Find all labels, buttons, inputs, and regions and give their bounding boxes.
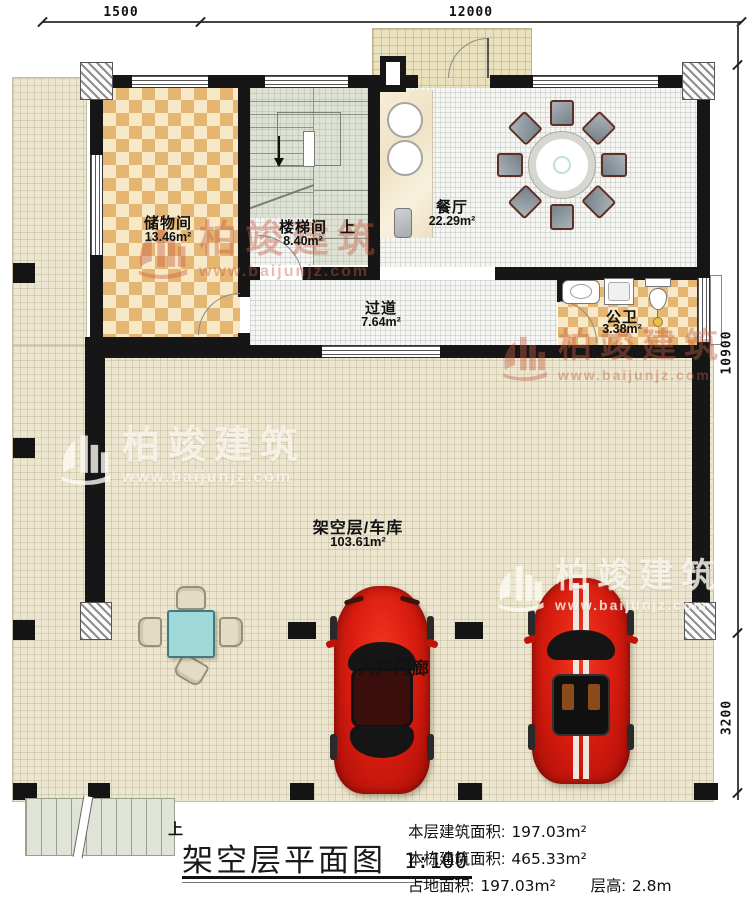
wheel — [528, 724, 535, 750]
wall — [490, 75, 533, 88]
wall-right-lower — [692, 358, 710, 604]
window — [533, 75, 658, 88]
chair — [219, 617, 243, 647]
dining-chair — [550, 100, 574, 126]
wheel — [627, 724, 634, 750]
stat-label: 本栋建筑面积: — [408, 851, 505, 868]
washing-machine-lid — [608, 282, 630, 301]
stat-value: 197.03m² — [480, 877, 556, 895]
dimension-top-left: 1500 — [42, 5, 200, 20]
windshield — [547, 630, 615, 660]
dimension-line-right — [737, 22, 739, 800]
dining-chair — [550, 204, 574, 230]
window — [90, 155, 103, 255]
counter-basin — [387, 140, 423, 176]
stair-arrowhead — [274, 158, 284, 167]
wall-storage-right — [238, 75, 250, 297]
column — [13, 263, 35, 283]
corner-column — [684, 602, 716, 640]
column — [458, 783, 482, 800]
column — [694, 783, 718, 800]
wall — [208, 75, 265, 88]
stair-arrow — [278, 136, 280, 160]
stair-tread — [250, 192, 313, 193]
engine-cover-window — [552, 674, 610, 736]
stat-value: 2.8m — [632, 877, 672, 895]
stair-newel — [303, 131, 315, 167]
stat-value: 197.03m² — [511, 823, 587, 841]
stat-value: 465.33m² — [511, 850, 587, 868]
entry-door-leaf — [487, 38, 489, 78]
chair — [176, 586, 206, 610]
counter-basin — [387, 102, 423, 138]
stair-tread — [313, 214, 368, 215]
corner-column — [682, 62, 715, 100]
bathroom-window — [697, 278, 710, 342]
stat-label: 本层建筑面积: — [408, 824, 505, 841]
apron-left-strip — [12, 77, 87, 347]
stair-tread — [250, 101, 368, 102]
wall-plate — [394, 208, 412, 238]
stat-floor-area: 本层建筑面积:197.03m² — [408, 820, 587, 842]
corner-column — [80, 62, 113, 100]
window — [265, 75, 348, 88]
exterior-steps — [25, 798, 175, 856]
car-left — [334, 586, 430, 794]
column — [13, 620, 35, 640]
room-area-corridor: 7.64m² — [352, 315, 410, 329]
floor-plan: 柏竣建筑 www.baijunjz.com 柏竣建筑 www.baijunjz.… — [0, 0, 750, 897]
dimension-right-upper: 10900 — [720, 323, 735, 383]
stair-tread — [313, 190, 368, 191]
engine-detail — [588, 684, 600, 710]
wall-stub — [238, 333, 250, 358]
drawing-title: 架空层平面图 — [182, 835, 386, 880]
stat-footprint-and-height: 占地面积:197.03m² 层高:2.8m — [408, 874, 672, 896]
dimension-top-main: 12000 — [200, 5, 742, 20]
room-area-stair: 8.40m² — [258, 234, 348, 248]
stair-tread — [250, 179, 313, 180]
car-right — [532, 578, 630, 784]
column — [290, 783, 314, 800]
table-center — [553, 156, 571, 174]
sink-bowl — [570, 284, 592, 299]
wall-stair-bottom — [238, 267, 260, 280]
toilet-tank — [645, 278, 671, 287]
wall-left-lower — [85, 358, 105, 604]
wheel — [330, 734, 337, 760]
floor-drain — [653, 317, 663, 327]
engine-detail — [562, 684, 574, 710]
column — [288, 622, 316, 639]
wheel — [427, 734, 434, 760]
wall-storage-bottom — [85, 337, 248, 358]
room-area-bath: 3.38m² — [592, 322, 652, 336]
window — [132, 75, 208, 88]
door-frame-inner — [386, 62, 400, 85]
wall-stair-bottom — [303, 267, 368, 280]
wheel — [627, 610, 634, 636]
stat-building-area: 本栋建筑面积:465.33m² — [408, 847, 587, 869]
stat-label: 层高: — [591, 878, 626, 895]
wall-stair-right — [368, 75, 380, 280]
wheel — [528, 610, 535, 636]
garage-opening — [322, 345, 440, 358]
square-table — [167, 610, 215, 658]
stat-label: 占地面积: — [408, 878, 474, 895]
dimension-line-top — [42, 21, 742, 23]
chair — [138, 617, 162, 647]
room-area-storage: 13.46m² — [118, 230, 218, 244]
dining-chair — [601, 153, 627, 177]
room-area-garage: 103.61m² — [298, 534, 418, 549]
dining-chair — [497, 153, 523, 177]
column — [13, 438, 35, 458]
room-area-dining: 22.29m² — [420, 214, 484, 228]
corner-column — [80, 602, 112, 640]
column — [455, 622, 483, 639]
dimension-right-lower: 3200 — [720, 688, 735, 748]
room-label-porch: 入户门廊 — [352, 654, 436, 679]
